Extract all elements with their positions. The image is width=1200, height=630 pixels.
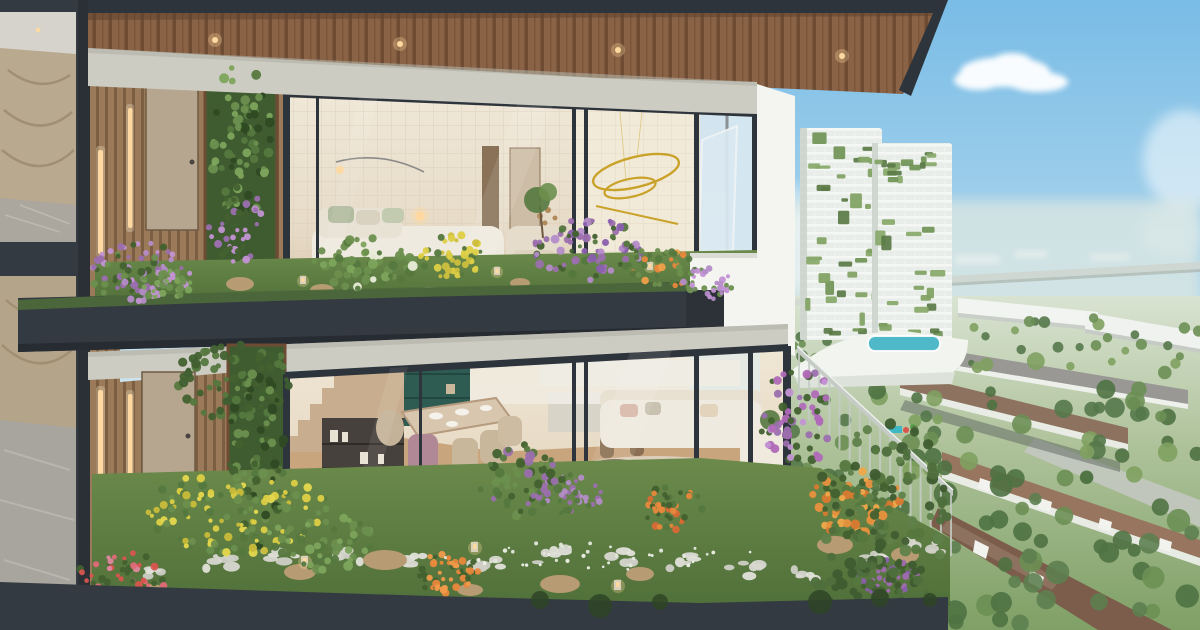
- linear-light: [128, 394, 133, 478]
- scene-canvas: [0, 0, 1200, 630]
- linear-light: [98, 150, 103, 254]
- roof-fascia: [88, 0, 948, 13]
- upper-entry-door: [146, 86, 198, 230]
- table-lamp: [416, 212, 425, 221]
- pool: [868, 336, 940, 351]
- lobby-upper: [0, 12, 76, 242]
- architectural-rendering: [0, 0, 1200, 630]
- linear-light: [128, 108, 133, 228]
- door-handle: [190, 160, 195, 165]
- door-handle: [186, 434, 191, 439]
- white-volume-side: [757, 84, 795, 356]
